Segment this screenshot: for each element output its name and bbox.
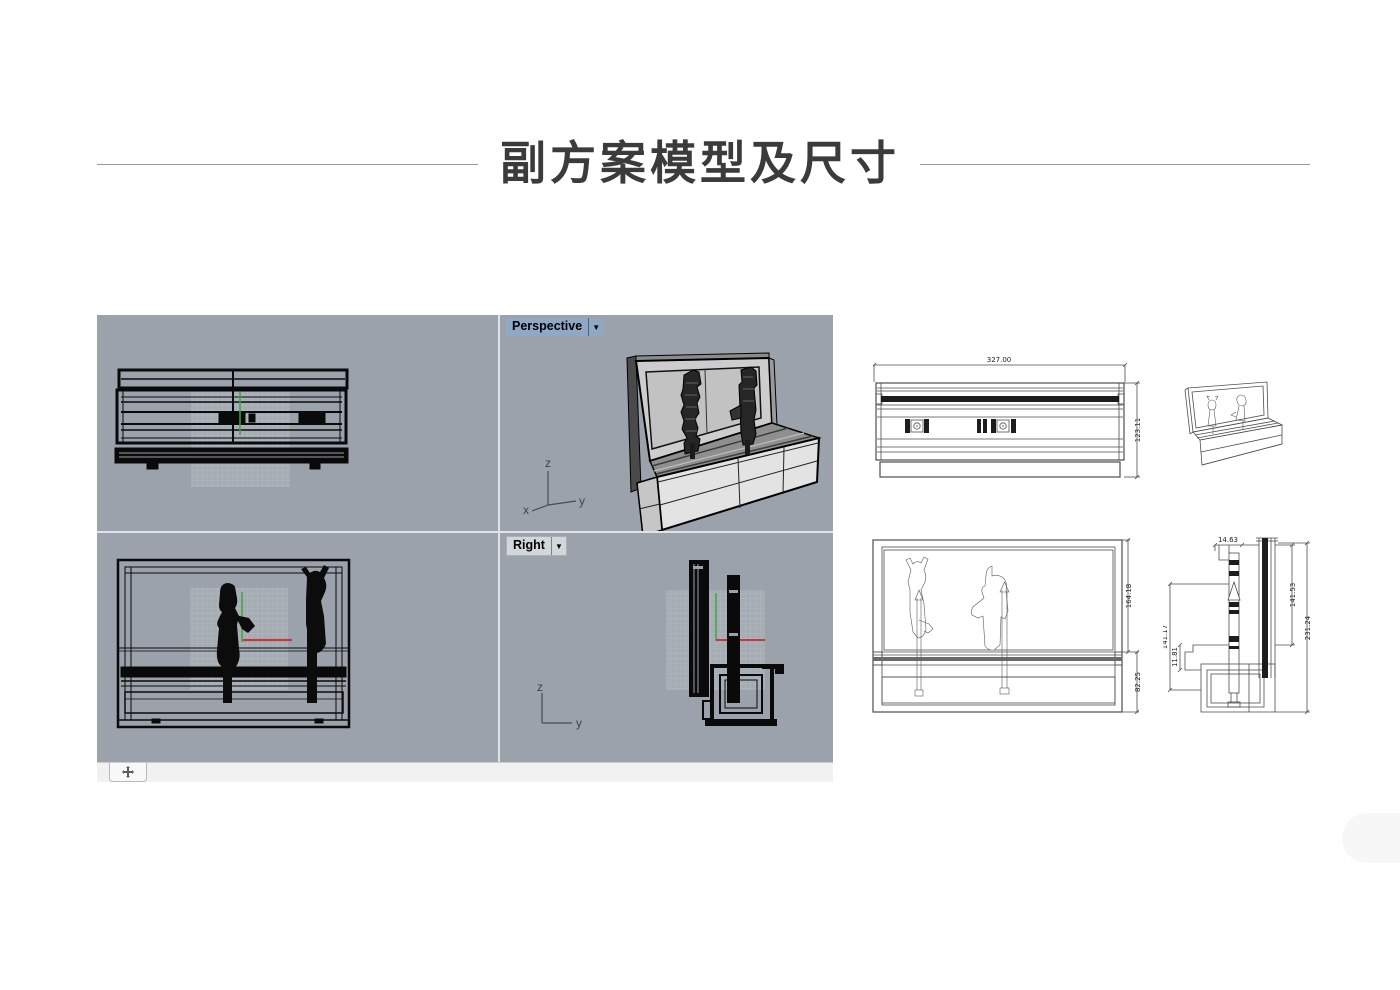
dim-side-view: 14.63 141.53 231.24 141.17 11.81 [1163, 530, 1318, 725]
floating-widget[interactable] [1342, 813, 1400, 863]
pole-stripes [1228, 560, 1240, 649]
slide: 副方案模型及尺寸 [0, 0, 1400, 990]
viewport-title-right[interactable]: Right ▼ [506, 536, 567, 556]
sketch-figures [1207, 395, 1246, 434]
dim-total-height: 231.24 [1304, 615, 1312, 640]
dim-width: 327.00 [987, 356, 1012, 364]
title-rule-right [920, 164, 1310, 165]
dim-step-height: 11.81 [1171, 647, 1179, 667]
svg-text:x: x [523, 503, 529, 517]
axis-gizmo-perspective: z y x [514, 453, 588, 523]
viewport-bottom-bar [97, 762, 833, 782]
top-view-wireframe [97, 315, 498, 531]
viewport-title-perspective[interactable]: Perspective ▼ [506, 318, 603, 336]
figure-right-silhouette [301, 565, 329, 703]
chevron-down-icon[interactable]: ▼ [588, 318, 603, 336]
svg-text:z: z [545, 456, 551, 470]
viewport-top[interactable] [97, 315, 498, 531]
perspective-sketch [1175, 368, 1295, 476]
top-view-body [115, 370, 348, 469]
svg-text:z: z [537, 681, 543, 694]
svg-text:y: y [576, 716, 582, 730]
dim-top-view: 327.00 123.11 [873, 355, 1145, 483]
viewport-right[interactable]: Right ▼ z y [500, 533, 833, 762]
connector-detail [905, 419, 1016, 433]
svg-text:y: y [579, 494, 585, 508]
dim-top-offset: 14.63 [1218, 536, 1238, 544]
dim-panel-height: 141.53 [1289, 583, 1297, 608]
dim-upper-height: 164.18 [1125, 584, 1133, 609]
pan-icon [121, 765, 135, 779]
right-view-body [689, 560, 784, 726]
page-title: 副方案模型及尺寸 [0, 133, 1400, 193]
figure-left [681, 370, 701, 459]
viewport-title-label: Right [507, 537, 551, 555]
viewport-title-label: Perspective [506, 318, 588, 336]
rhino-viewport-panel: Perspective ▼ z y x [97, 315, 833, 782]
axis-gizmo-right: z y [524, 681, 586, 735]
dim-front-view: 164.18 82.25 [871, 538, 1143, 723]
dim-lower-height: 82.25 [1134, 672, 1142, 692]
dim-depth: 123.11 [1134, 418, 1142, 443]
chevron-down-icon[interactable]: ▼ [551, 537, 566, 555]
viewport-front[interactable] [97, 533, 498, 762]
viewport-perspective[interactable]: Perspective ▼ z y x [500, 315, 833, 531]
dim-left-height: 141.17 [1163, 625, 1169, 650]
front-view-wireframe [97, 533, 498, 762]
figure-outlines [906, 557, 1009, 696]
pan-tab[interactable] [109, 763, 147, 782]
